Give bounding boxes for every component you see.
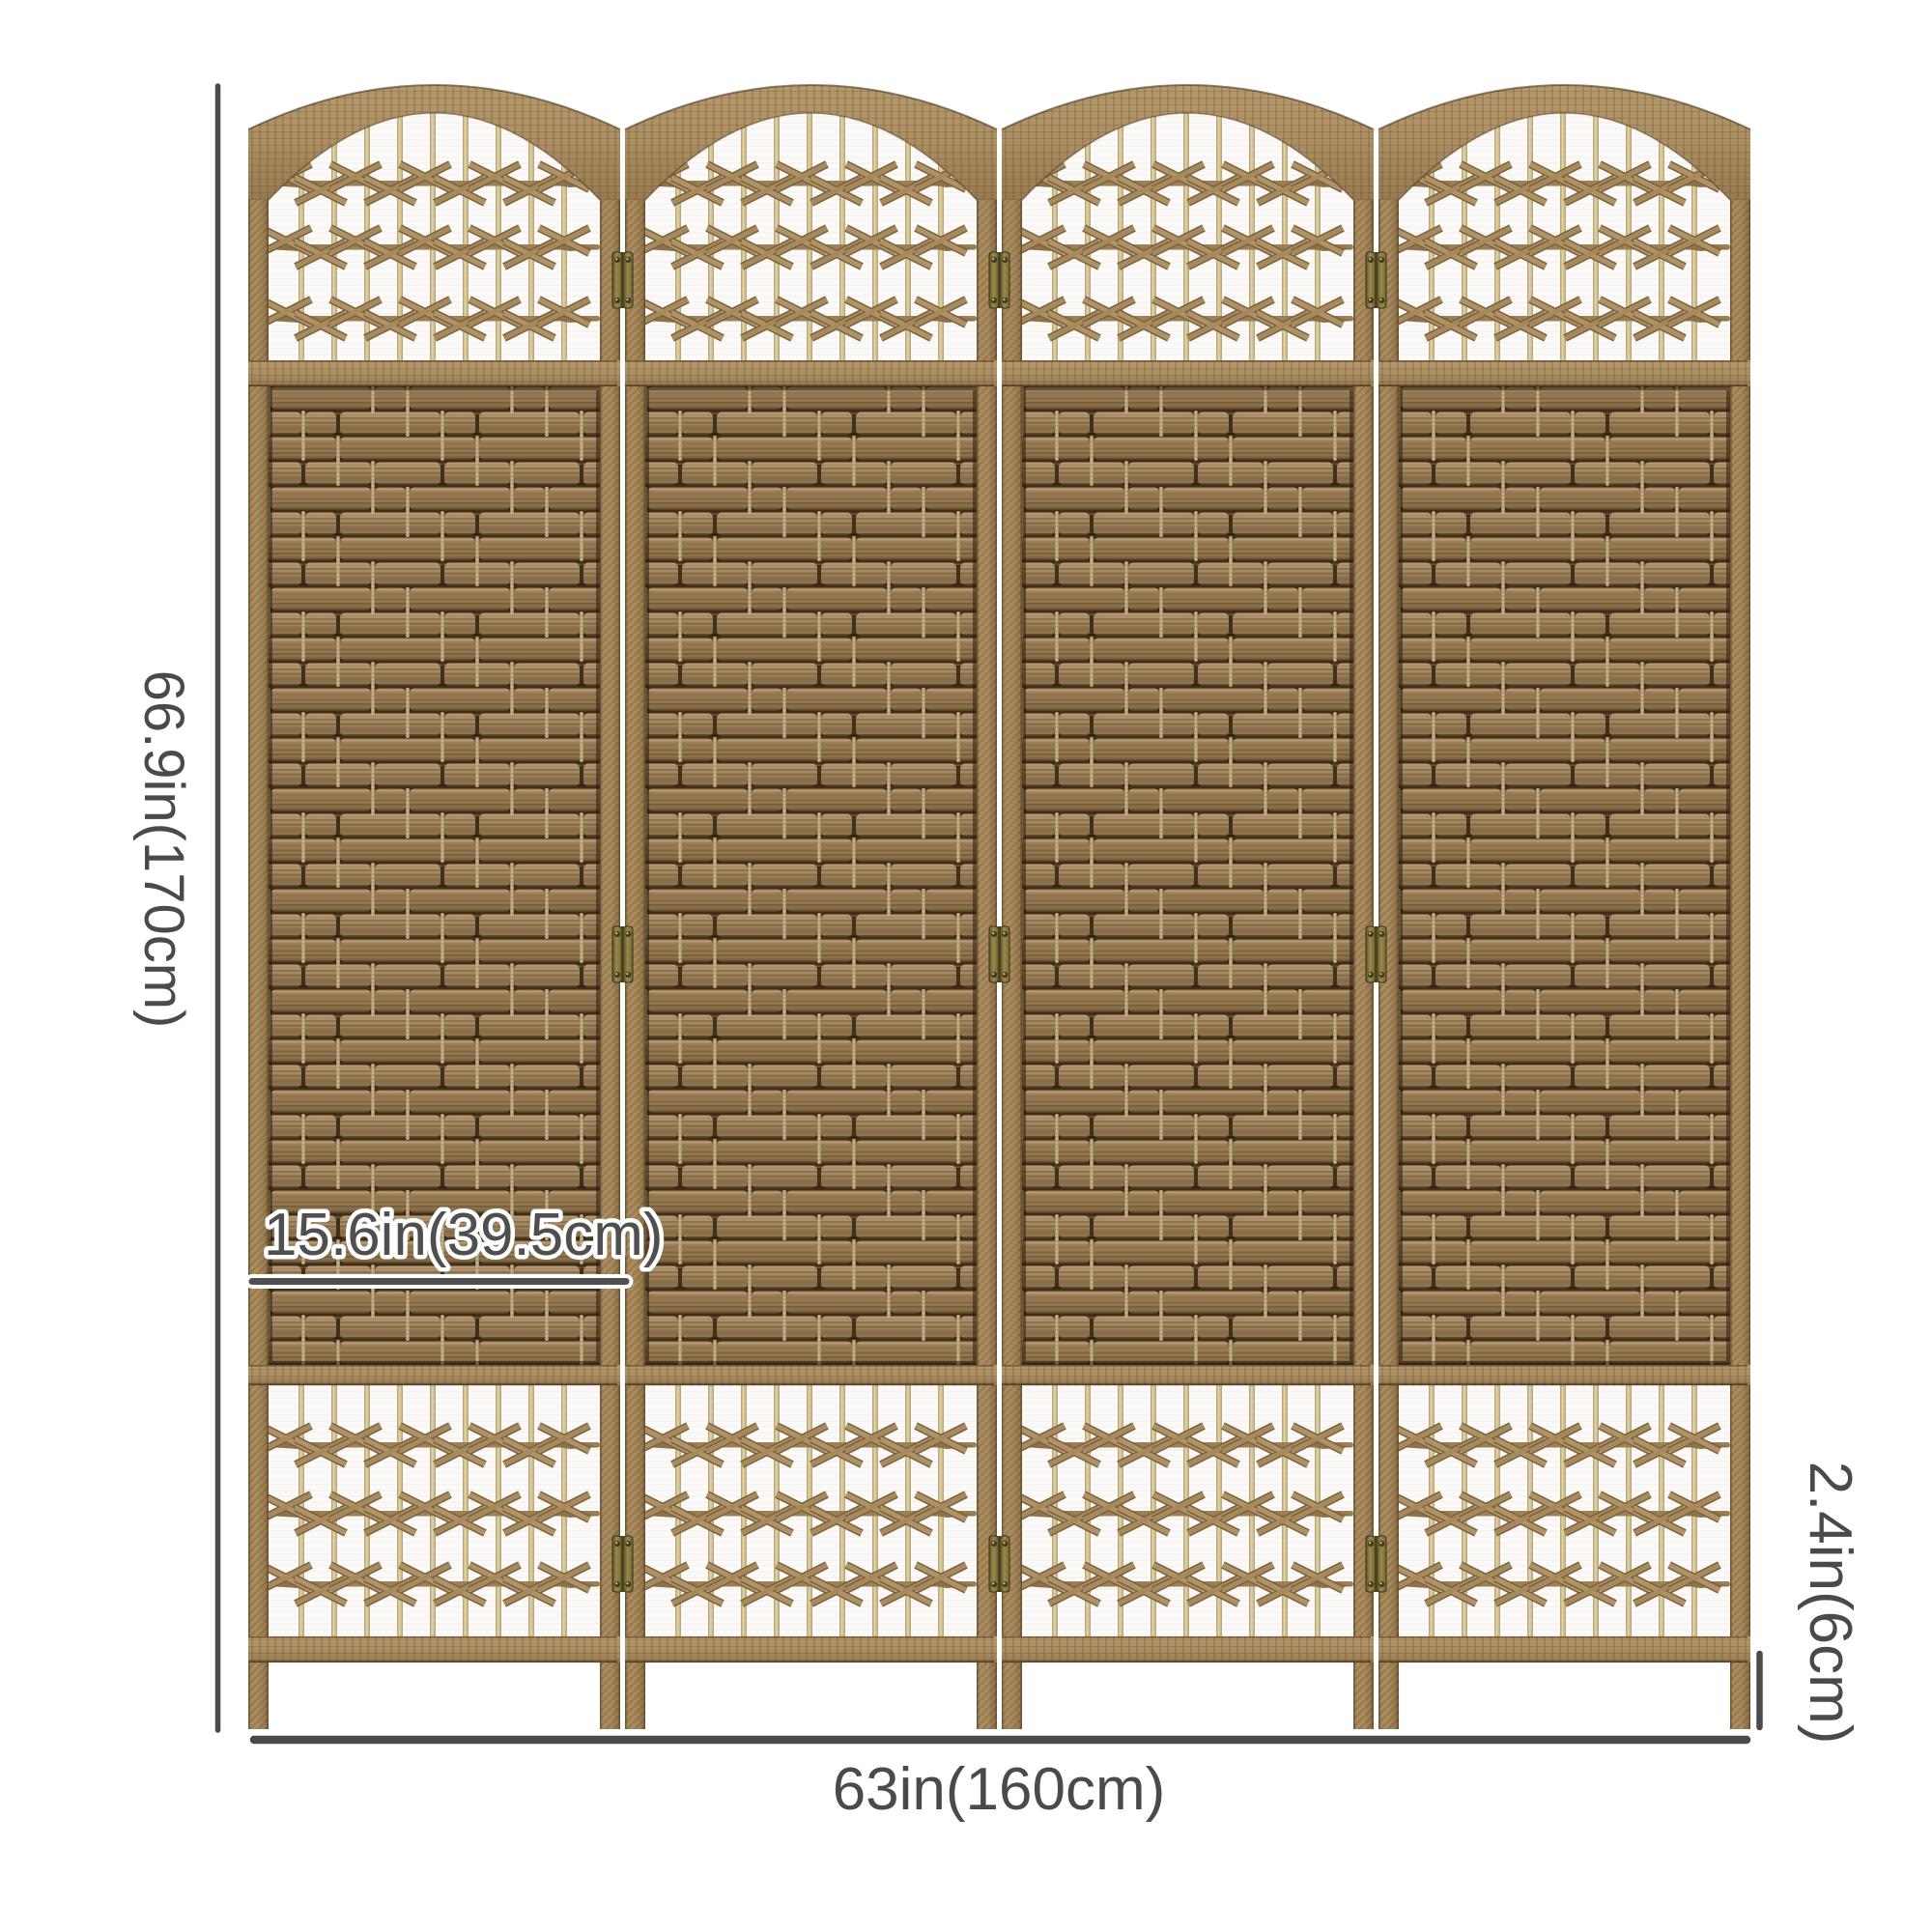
svg-text:15.6in(39.5cm): 15.6in(39.5cm) <box>264 1202 664 1268</box>
svg-text:63in(160cm): 63in(160cm) <box>833 1756 1166 1823</box>
svg-text:2.4in(6cm): 2.4in(6cm) <box>1797 1462 1863 1745</box>
svg-text:66.9in(170cm): 66.9in(170cm) <box>132 670 195 1029</box>
